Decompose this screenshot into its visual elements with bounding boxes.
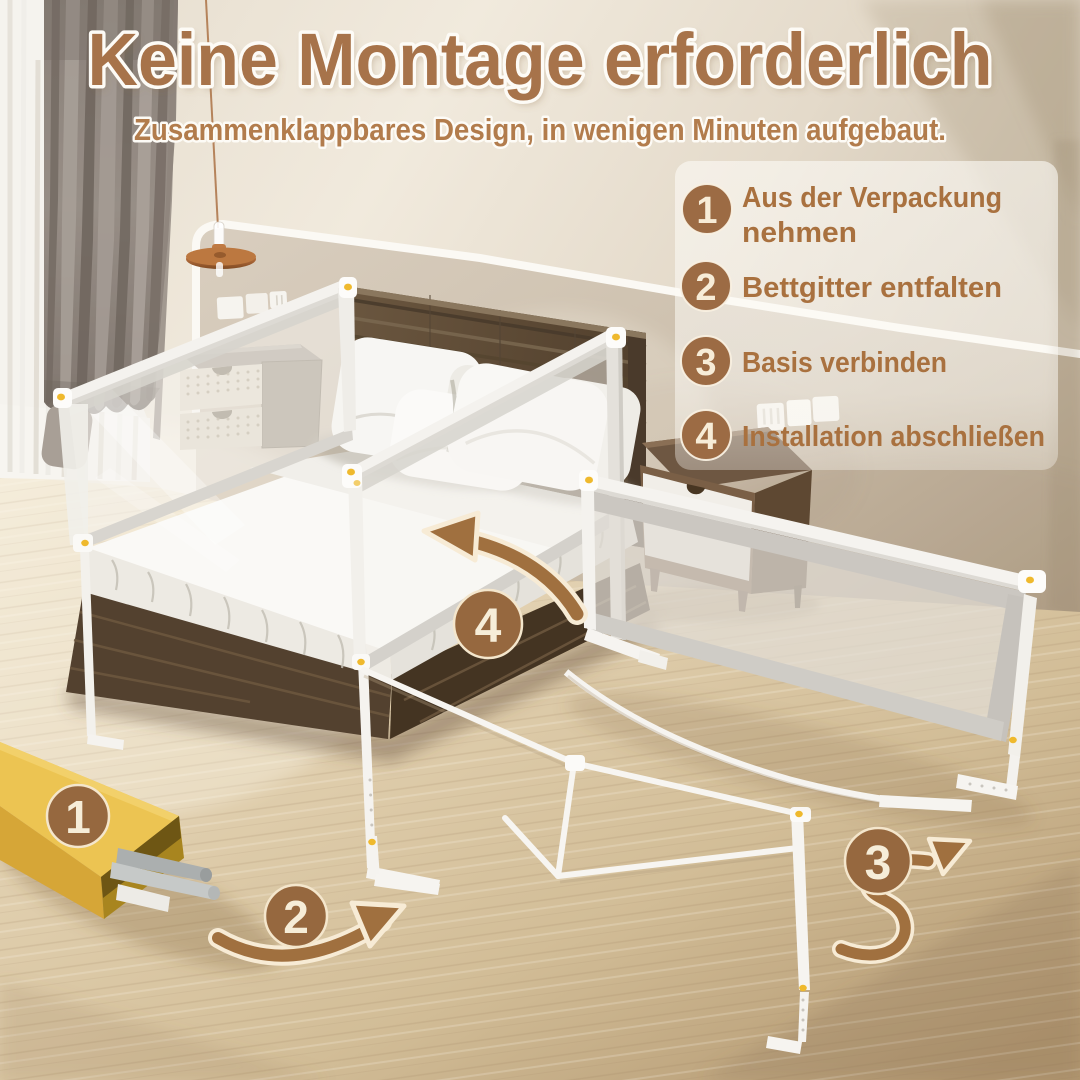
svg-text:4: 4 — [475, 600, 502, 653]
svg-text:Bettgitter entfalten: Bettgitter entfalten — [742, 272, 1002, 304]
svg-text:Basis verbinden: Basis verbinden — [742, 347, 947, 379]
svg-text:3: 3 — [695, 342, 716, 384]
svg-text:nehmen: nehmen — [742, 217, 857, 249]
svg-text:2: 2 — [695, 267, 716, 309]
svg-text:1: 1 — [65, 791, 91, 843]
svg-text:4: 4 — [695, 416, 716, 458]
svg-text:Aus der Verpackung: Aus der Verpackung — [742, 182, 1002, 214]
svg-text:Keine Montage erforderlich: Keine Montage erforderlich — [88, 18, 993, 101]
svg-text:Zusammenklappbares Design, in: Zusammenklappbares Design, in wenigen Mi… — [134, 112, 946, 147]
svg-text:Installation abschließen: Installation abschließen — [742, 421, 1045, 453]
svg-text:2: 2 — [283, 891, 309, 943]
svg-text:1: 1 — [696, 190, 717, 232]
svg-text:3: 3 — [865, 837, 892, 890]
